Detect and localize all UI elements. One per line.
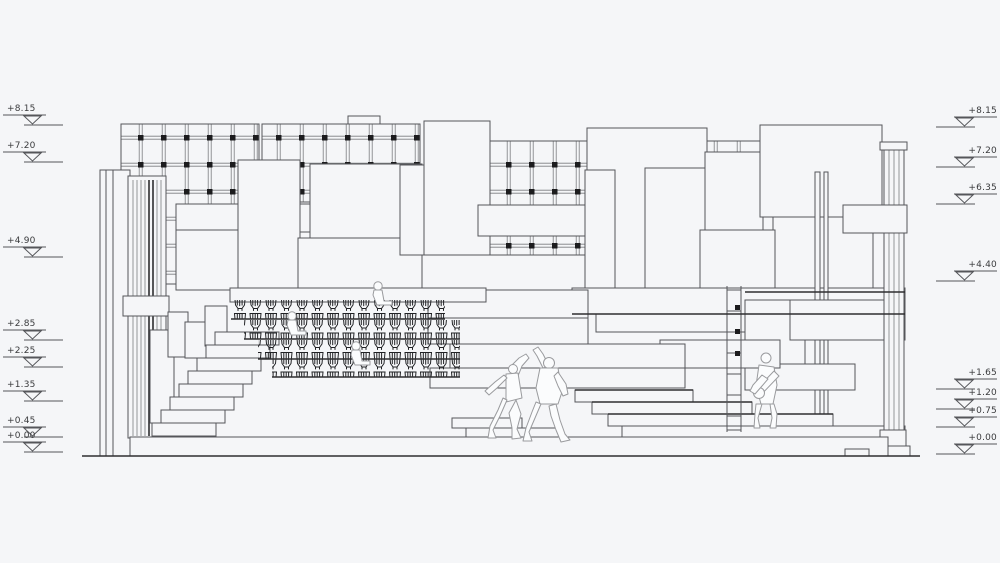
level-marker-right: +0.00	[936, 433, 997, 454]
level-triangle-icon	[24, 116, 41, 124]
level-triangle-icon	[956, 158, 973, 166]
level-label: +8.15	[7, 104, 36, 114]
level-triangle-icon	[24, 153, 41, 161]
level-label: +0.45	[7, 416, 36, 426]
level-triangle-icon	[956, 445, 973, 453]
level-marker-left: +0.00	[3, 431, 63, 452]
section-drawing-canvas: +8.15+7.20+4.90+2.85+2.25+1.35+0.45+0.00…	[0, 0, 1000, 563]
level-triangle-icon	[956, 380, 973, 388]
level-marker-left: +2.85	[3, 319, 63, 340]
level-label: +1.35	[7, 380, 36, 390]
level-marker-left: +7.20	[3, 141, 63, 162]
level-triangle-icon	[956, 418, 973, 426]
level-triangle-icon	[956, 118, 973, 126]
level-triangle-icon	[24, 392, 41, 400]
level-label: +7.20	[968, 146, 997, 156]
level-label: +2.85	[7, 319, 36, 329]
level-marker-right: +6.35	[936, 183, 997, 204]
level-markers-left: +8.15+7.20+4.90+2.85+2.25+1.35+0.45+0.00	[3, 104, 63, 452]
level-triangle-icon	[956, 272, 973, 280]
level-label: +0.00	[7, 431, 36, 441]
level-label: +6.35	[968, 183, 997, 193]
level-marker-right: +1.65	[936, 368, 997, 389]
level-label: +7.20	[7, 141, 36, 151]
level-marker-left: +1.35	[3, 380, 63, 401]
section-drawing: +8.15+7.20+4.90+2.85+2.25+1.35+0.45+0.00…	[0, 0, 1000, 563]
level-marker-right: +8.15	[936, 106, 997, 127]
level-label: +4.90	[7, 236, 36, 246]
level-marker-left: +4.90	[3, 236, 63, 257]
level-label: +1.65	[968, 368, 997, 378]
level-triangle-icon	[24, 358, 41, 366]
level-marker-right: +7.20	[936, 146, 997, 167]
level-label: +1.20	[968, 388, 997, 398]
level-marker-right: +4.40	[936, 260, 997, 281]
level-marker-left: +8.15	[3, 104, 63, 125]
level-marker-left: +2.25	[3, 346, 63, 367]
level-label: +0.00	[968, 433, 997, 443]
seat-rows	[231, 300, 460, 377]
level-label: +8.15	[968, 106, 997, 116]
level-triangle-icon	[956, 195, 973, 203]
level-triangle-icon	[24, 443, 41, 451]
level-triangle-icon	[24, 331, 41, 339]
level-markers-right: +8.15+7.20+6.35+4.40+1.65+1.20+0.75+0.00	[936, 106, 997, 454]
level-label: +2.25	[7, 346, 36, 356]
level-triangle-icon	[24, 248, 41, 256]
level-label: +0.75	[968, 406, 997, 416]
level-label: +4.40	[968, 260, 997, 270]
